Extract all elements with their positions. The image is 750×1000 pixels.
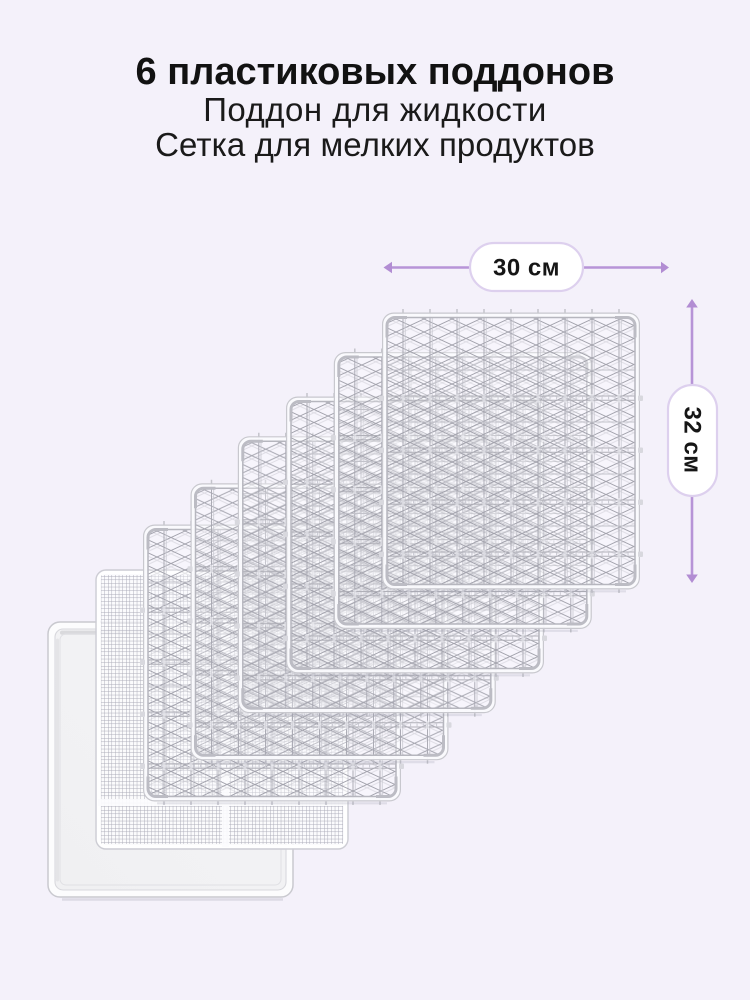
svg-text:6 пластиковых поддонов: 6 пластиковых поддонов <box>136 51 615 93</box>
svg-text:Поддон для жидкости: Поддон для жидкости <box>203 91 547 128</box>
svg-text:30 см: 30 см <box>493 255 560 282</box>
svg-text:Сетка для мелких продуктов: Сетка для мелких продуктов <box>155 126 595 163</box>
svg-text:32 см: 32 см <box>679 407 706 474</box>
